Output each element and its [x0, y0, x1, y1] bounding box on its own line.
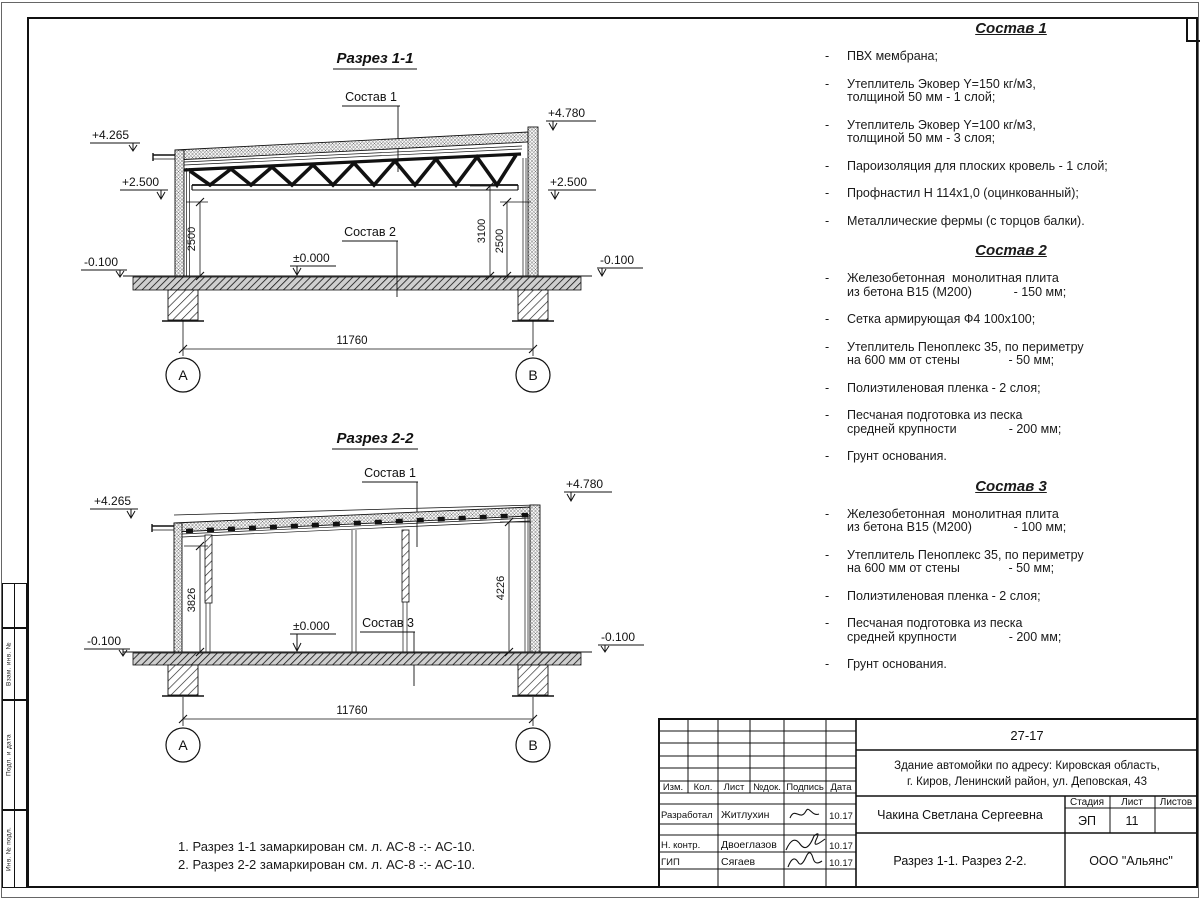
svg-text:4226: 4226 — [495, 576, 507, 600]
list-item: -Полиэтиленовая пленка - 2 слоя; — [822, 590, 1200, 604]
svg-text:+2.500: +2.500 — [122, 175, 159, 189]
list-item: -Пароизоляция для плоских кровель - 1 сл… — [822, 160, 1200, 174]
signature — [790, 809, 819, 818]
svg-text:Сягаев: Сягаев — [721, 856, 756, 868]
svg-text:Кол.: Кол. — [694, 782, 713, 793]
list-item: -Металлические фермы (с торцов балки). — [822, 215, 1200, 229]
signature-row-developer: Разработал Житлухин 10.17 — [661, 809, 853, 822]
section2-roof — [152, 505, 536, 537]
list-item: -Грунт основания. — [822, 450, 1200, 464]
svg-text:№док.: №док. — [753, 782, 781, 793]
signature-row-gip: ГИП Сягаев 10.17 — [661, 853, 853, 869]
sheet-number: 11 — [1126, 814, 1139, 828]
stage-value: ЭП — [1078, 814, 1096, 828]
svg-text:10.17: 10.17 — [829, 811, 853, 822]
section2-level-zero: ±0.000 — [290, 619, 336, 651]
signature — [786, 834, 825, 850]
section1-roof — [153, 132, 528, 165]
svg-text:Двоеглазов: Двоеглазов — [721, 839, 777, 851]
title-block: 27-17 Здание автомойки по адресу: Кировс… — [658, 718, 1198, 888]
left-strip-label: Инв. № подл. — [6, 827, 13, 871]
svg-text:2500: 2500 — [186, 227, 198, 251]
section1-floor — [123, 276, 592, 321]
author-name: Чакина Светлана Сергеевна — [877, 808, 1043, 822]
list-item: -Профнастил Н 114х1,0 (оцинкованный); — [822, 187, 1200, 201]
section1-level-right-top: +4.780 — [546, 106, 596, 130]
left-strip-box-podp: Подп. и дата — [2, 700, 27, 810]
section2-dim-left-3826: 3826 — [184, 542, 208, 656]
svg-text:+4.780: +4.780 — [566, 477, 603, 491]
section1-dim-right-3100: 3100 — [470, 182, 497, 280]
section1-level-right-base: -0.100 — [597, 253, 643, 276]
notes: 1. Разрез 1-1 замаркирован см. л. АС-8 -… — [178, 838, 475, 873]
left-strip-empty-box — [2, 583, 27, 628]
list-item: -Песчаная подготовка из песка средней кр… — [822, 617, 1200, 644]
section2-axis-a: А — [166, 728, 200, 762]
project-address-line1: Здание автомойки по адресу: Кировская об… — [894, 760, 1160, 772]
section1-axis-a: А — [166, 358, 200, 392]
section2-span-dim: 11760 — [179, 697, 537, 726]
title-block-header-row: Изм. Кол. Лист №док. Подпись Дата — [663, 782, 852, 793]
svg-text:Состав 2: Состав 2 — [344, 225, 396, 239]
section2-axis-b: В — [516, 728, 550, 762]
list-item: -Утеплитель Пеноплекс 35, по периметру н… — [822, 549, 1200, 576]
list-item: -Грунт основания. — [822, 658, 1200, 672]
sheet-label: Лист — [1121, 797, 1143, 808]
svg-text:3826: 3826 — [186, 588, 198, 612]
section2-level-right-base: -0.100 — [598, 630, 644, 652]
note-line: 2. Разрез 2-2 замаркирован см. л. АС-8 -… — [178, 856, 475, 874]
section1-axis-b: В — [516, 358, 550, 392]
svg-text:-0.100: -0.100 — [84, 255, 118, 269]
section1-level-left-base: -0.100 — [81, 255, 127, 277]
list-item: -ПВХ мембрана; — [822, 50, 1200, 64]
svg-text:+4.265: +4.265 — [92, 128, 129, 142]
svg-text:10.17: 10.17 — [829, 858, 853, 869]
svg-text:+4.780: +4.780 — [548, 106, 585, 120]
svg-text:ГИП: ГИП — [661, 857, 680, 868]
list-item: -Железобетонная монолитная плита из бето… — [822, 508, 1200, 535]
section2-floor — [123, 652, 592, 696]
composition-2-title: Состав 2 — [822, 242, 1200, 259]
svg-text:Дата: Дата — [830, 782, 852, 793]
composition-1-title: Состав 1 — [822, 20, 1200, 37]
left-strip-box-vzam: Взам. инв. № — [2, 628, 27, 700]
svg-text:В: В — [528, 367, 537, 383]
section1-dim-right-2500: 2500 — [494, 198, 531, 280]
section1-level-left-mid: +2.500 — [120, 175, 168, 199]
signature-row-ncontrol: Н. контр. Двоеглазов 10.17 — [661, 834, 853, 852]
svg-text:Подпись: Подпись — [786, 782, 824, 793]
doc-title: Разрез 1-1. Разрез 2-2. — [893, 854, 1026, 868]
svg-text:+2.500: +2.500 — [550, 175, 587, 189]
drawing-sheet: { "bullet": "-", "sections": { "s1": { "… — [0, 0, 1200, 900]
svg-text:±0.000: ±0.000 — [293, 619, 330, 633]
svg-text:3100: 3100 — [476, 219, 488, 243]
svg-text:11760: 11760 — [336, 335, 367, 347]
note-line: 1. Разрез 1-1 замаркирован см. л. АС-8 -… — [178, 838, 475, 856]
composition-3-title: Состав 3 — [822, 478, 1200, 495]
svg-text:Состав 1: Состав 1 — [345, 90, 397, 104]
svg-text:10.17: 10.17 — [829, 841, 853, 852]
svg-text:Разработал: Разработал — [661, 810, 713, 821]
svg-text:Изм.: Изм. — [663, 782, 683, 793]
svg-text:А: А — [178, 367, 188, 383]
composition-panel: Состав 1 -ПВХ мембрана; -Утеплитель Эков… — [822, 20, 1200, 686]
stage-label: Стадия — [1070, 797, 1104, 808]
svg-text:-0.100: -0.100 — [601, 630, 635, 644]
section2-level-left-top: +4.265 — [90, 494, 138, 518]
list-item: -Сетка армирующая Ф4 100х100; — [822, 313, 1200, 327]
svg-text:А: А — [178, 737, 188, 753]
left-strip-label: Взам. инв. № — [6, 642, 13, 686]
left-strip-box-inv: Инв. № подл. — [2, 810, 27, 888]
section2-leader-sostav1: Состав 1 — [362, 466, 418, 547]
svg-text:11760: 11760 — [336, 705, 367, 717]
section2-dim-right-4226: 4226 — [495, 518, 531, 656]
section1-level-right-mid: +2.500 — [548, 175, 596, 199]
section1-title: Разрез 1-1 — [336, 50, 413, 67]
company-name: ООО "Альянс" — [1089, 854, 1173, 868]
list-item: -Утеплитель Пеноплекс 35, по периметру н… — [822, 341, 1200, 368]
section1-level-zero: ±0.000 — [290, 251, 336, 275]
svg-text:В: В — [528, 737, 537, 753]
project-address-line2: г. Киров, Ленинский район, ул. Деповская… — [907, 776, 1147, 788]
svg-text:±0.000: ±0.000 — [293, 251, 330, 265]
section2-title: Разрез 2-2 — [336, 430, 414, 447]
svg-text:Состав 3: Состав 3 — [362, 616, 414, 630]
section1-span-dim: 11760 — [179, 320, 537, 356]
svg-text:+4.265: +4.265 — [94, 494, 131, 508]
svg-text:-0.100: -0.100 — [87, 634, 121, 648]
sheets-label: Листов — [1160, 797, 1193, 808]
section2-level-right-top: +4.780 — [564, 477, 612, 501]
left-strip-label: Подп. и дата — [6, 734, 13, 776]
section2-level-left-base: -0.100 — [84, 634, 130, 656]
section-1-1-drawing: Разрез 1-1 Состав 1 — [80, 40, 660, 400]
list-item: -Утеплитель Эковер Y=100 кг/м3, толщиной… — [822, 119, 1200, 146]
list-item: -Железобетонная монолитная плита из бето… — [822, 272, 1200, 299]
list-item: -Утеплитель Эковер Y=150 кг/м3, толщиной… — [822, 78, 1200, 105]
project-code: 27-17 — [1010, 728, 1043, 743]
svg-text:Лист: Лист — [724, 782, 745, 793]
list-item: -Песчаная подготовка из песка средней кр… — [822, 409, 1200, 436]
svg-text:2500: 2500 — [494, 229, 506, 253]
svg-text:-0.100: -0.100 — [600, 253, 634, 267]
svg-text:Состав 1: Состав 1 — [364, 466, 416, 480]
section1-level-left-top: +4.265 — [90, 128, 140, 151]
signature — [788, 853, 822, 867]
section-2-2-drawing: Разрез 2-2 Состав 1 Состав 3 — [80, 420, 660, 780]
svg-text:Житлухин: Житлухин — [721, 809, 770, 821]
svg-text:Н. контр.: Н. контр. — [661, 840, 700, 851]
list-item: -Полиэтиленовая пленка - 2 слоя; — [822, 382, 1200, 396]
